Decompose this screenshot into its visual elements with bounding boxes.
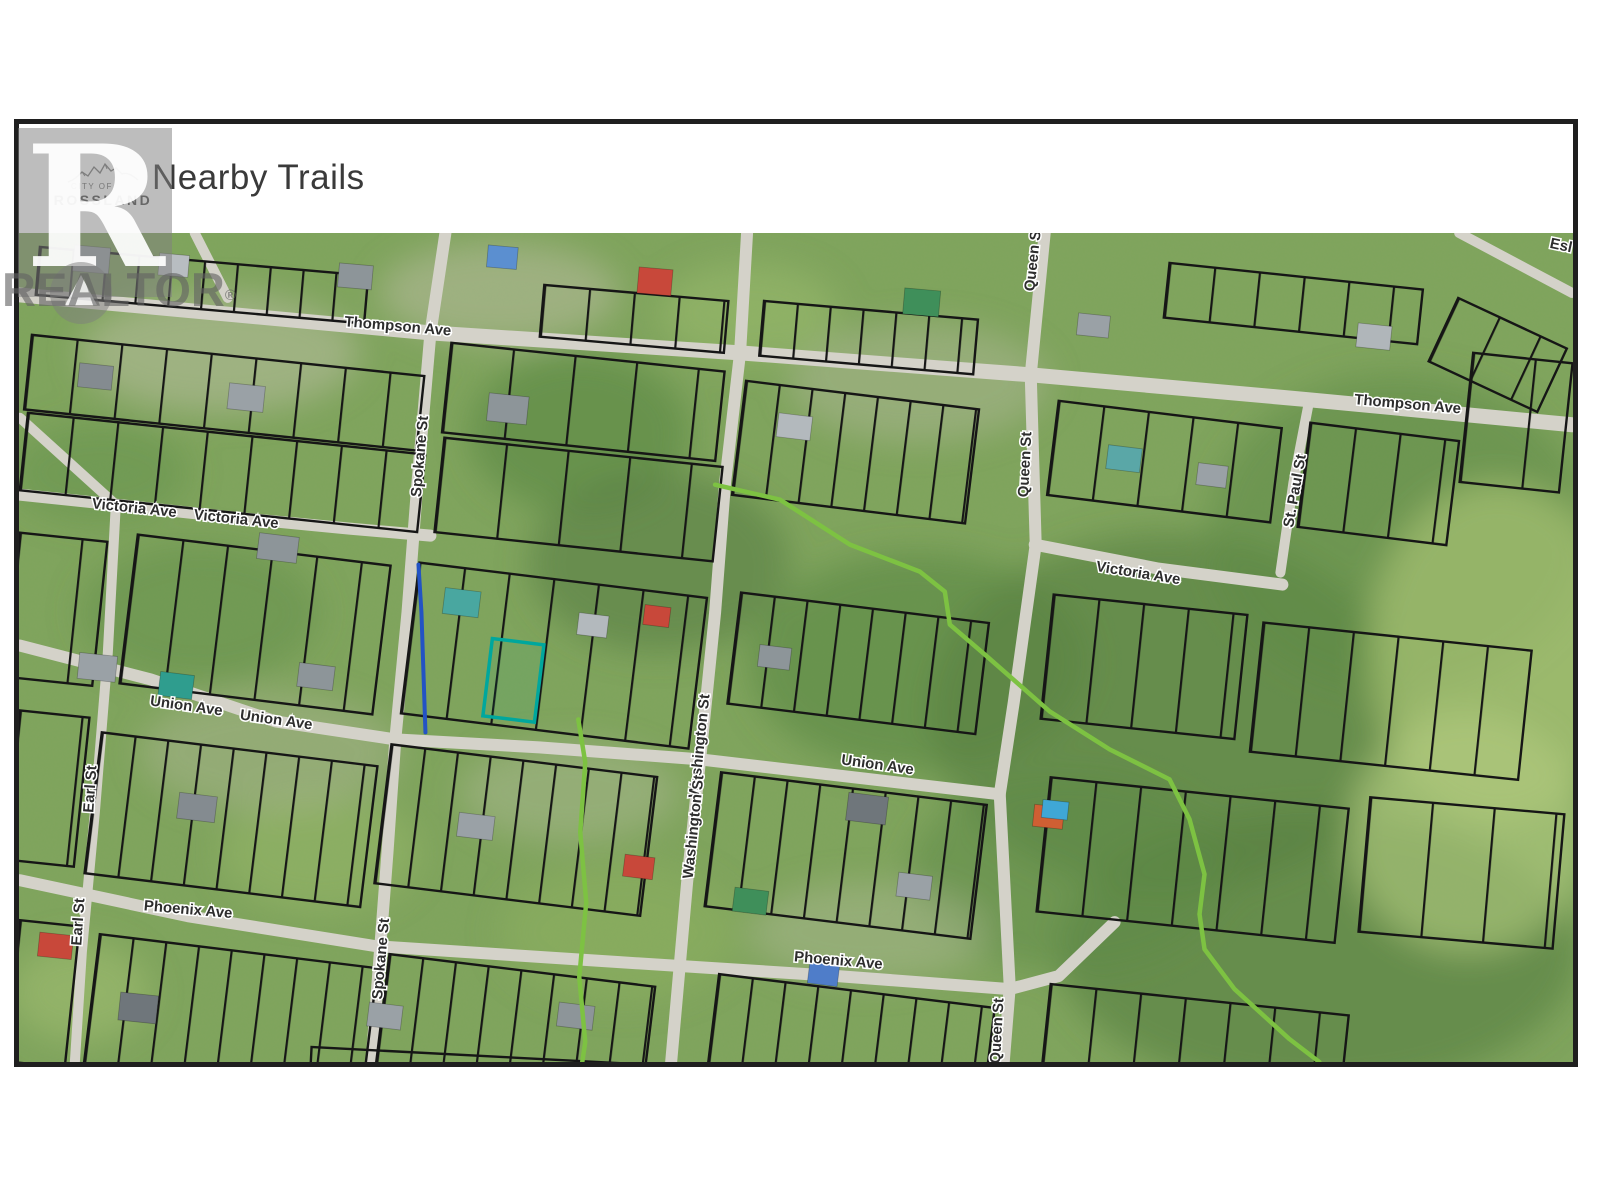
parcel-block: [1460, 353, 1573, 493]
parcel-block: [1250, 623, 1532, 780]
registered-symbol: ®: [225, 287, 236, 304]
parcel-block: [1041, 595, 1248, 740]
street-label: Earl St: [80, 765, 100, 814]
map-header: CITY OF ROSSLAND Nearby Trails: [19, 124, 1573, 233]
aerial-map: Thompson Ave Thompson Ave Victoria Ave V…: [19, 233, 1573, 1062]
aerial-map-svg: Thompson Ave Thompson Ave Victoria Ave V…: [19, 233, 1573, 1062]
realtor-watermark-text: REALTOR®: [2, 262, 232, 334]
parcel-block: [1359, 797, 1565, 948]
street-label: Earl St: [68, 898, 88, 947]
parcel-block: [1298, 423, 1459, 545]
map-frame: CITY OF ROSSLAND Nearby Trails: [14, 119, 1578, 1067]
subject-parcel-highlight: [483, 639, 544, 723]
street-label: Queen St: [1015, 431, 1035, 498]
page-title: Nearby Trails: [152, 158, 365, 198]
page: CITY OF ROSSLAND Nearby Trails: [0, 0, 1600, 1200]
street-label: Queen St: [987, 998, 1007, 1062]
realtor-wordmark: REALTOR: [2, 263, 225, 316]
